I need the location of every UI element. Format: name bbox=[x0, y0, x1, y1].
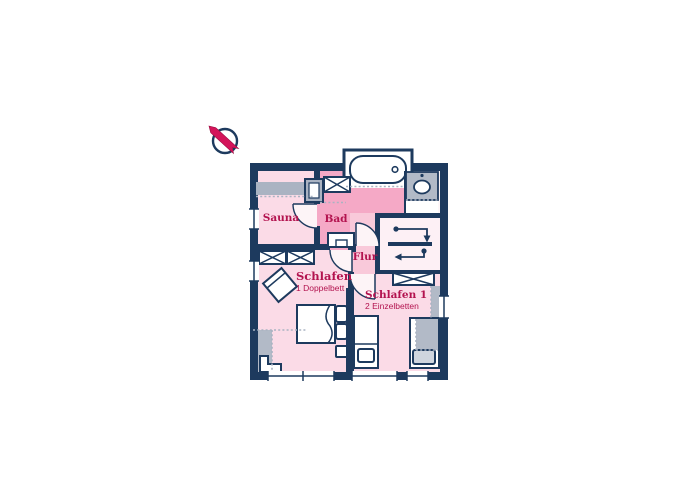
window-right-schlafen1 bbox=[439, 296, 449, 318]
window-left-sauna bbox=[249, 209, 259, 229]
pillow bbox=[336, 324, 347, 339]
floor-plan-canvas: Sauna Bad Flur Schlafen 1 Doppelbett Sch… bbox=[0, 0, 700, 500]
pillow bbox=[336, 306, 347, 322]
bathtub bbox=[344, 150, 412, 188]
floor-plan: Sauna Bad Flur Schlafen 1 Doppelbett Sch… bbox=[249, 150, 449, 381]
nightstand bbox=[336, 346, 347, 357]
room-label-schlafen: Schlafen bbox=[296, 269, 353, 283]
room-sublabel-schlafen1: 2 Einzelbetten bbox=[365, 301, 419, 311]
wardrobe-x-box-schlafen1 bbox=[393, 273, 434, 285]
window-bottom-schlafen1-left bbox=[352, 371, 397, 381]
window-bottom-schlafen1-right bbox=[407, 371, 428, 381]
room-sublabel-schlafen: 1 Doppelbett bbox=[296, 283, 345, 293]
window-left-schlafen bbox=[249, 261, 259, 281]
bathtub-drain bbox=[392, 167, 398, 173]
slope-gray-schlafen1 bbox=[431, 286, 440, 318]
pillow bbox=[413, 350, 435, 364]
wardrobe-x-box-bad bbox=[324, 177, 350, 192]
single-bed-right bbox=[410, 318, 439, 368]
room-label-sauna: Sauna bbox=[263, 212, 300, 224]
window-bottom-schlafen bbox=[268, 371, 334, 381]
single-bed-left bbox=[354, 316, 378, 368]
compass-icon bbox=[209, 126, 239, 154]
room-label-schlafen1: Schlafen 1 bbox=[365, 289, 427, 301]
wardrobes-schlafen bbox=[259, 251, 314, 264]
room-label-bad: Bad bbox=[324, 213, 348, 225]
room-label-flur: Flur bbox=[353, 251, 378, 263]
washbasin bbox=[328, 233, 354, 247]
toilet bbox=[406, 172, 438, 213]
pillow bbox=[358, 349, 374, 362]
